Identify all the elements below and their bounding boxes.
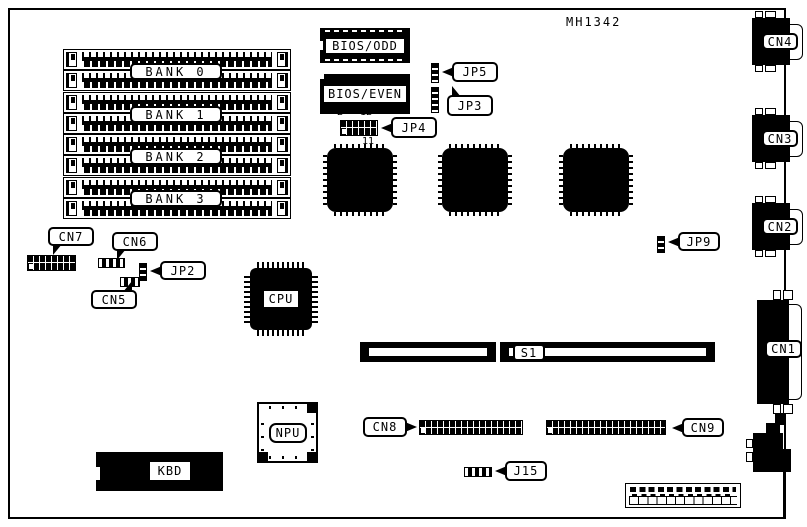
- npu-socket: NPU: [257, 402, 318, 463]
- asic-chip-2: [442, 148, 508, 212]
- jp9-callout: JP9: [678, 232, 720, 251]
- jp4-label: JP4: [402, 121, 427, 135]
- bios-odd-label: BIOS/ODD: [324, 37, 406, 55]
- jp5-label: JP5: [463, 65, 488, 79]
- cn8-header: [419, 420, 523, 435]
- cpu-label: CPU: [262, 289, 300, 309]
- jp9-label: JP9: [687, 235, 712, 249]
- cpu-chip: CPU: [250, 268, 312, 330]
- jp2-jumper: [139, 263, 147, 281]
- bank1-label: BANK 1: [130, 106, 222, 123]
- cn8-callout: CN8: [363, 417, 407, 437]
- cn2-label: CN2: [762, 218, 798, 235]
- cn9-header: [546, 420, 666, 435]
- cn1-connector: CN1: [751, 288, 803, 416]
- motherboard-diagram: MH1342 BANK 0 BANK 1 BANK 2 BANK 3 BIOS/…: [0, 0, 807, 527]
- bios-even-label: BIOS/EVEN: [322, 84, 408, 104]
- kbd-chip: KBD: [96, 452, 223, 491]
- cn7-callout: CN7: [48, 227, 94, 246]
- jp4-pin2-number: 2: [337, 107, 343, 118]
- slot-bar-left: [360, 342, 496, 362]
- edge-line: [783, 472, 786, 519]
- jp2-callout: JP2: [160, 261, 206, 280]
- j15-callout: J15: [505, 461, 547, 481]
- part-number: MH1342: [566, 15, 621, 29]
- jp5-jumper: [431, 63, 439, 83]
- s1-label: S1: [513, 344, 545, 361]
- cn1-label: CN1: [765, 340, 802, 358]
- bios-odd-chip: BIOS/ODD: [320, 28, 410, 63]
- jp4-pin12-number: 12: [360, 107, 372, 118]
- asic-chip-3: [563, 148, 629, 212]
- bank0-label: BANK 0: [130, 63, 222, 80]
- cn3-connector: CN3: [751, 108, 803, 172]
- cn3-label: CN3: [762, 130, 798, 147]
- cn9-label: CN9: [691, 421, 716, 435]
- bank2-label: BANK 2: [130, 148, 222, 165]
- jp9-jumper: [657, 236, 665, 253]
- cn4-connector: CN4: [751, 11, 803, 75]
- j15-label: J15: [514, 464, 539, 478]
- cn5-label: CN5: [102, 293, 127, 307]
- jp3-jumper: [431, 87, 439, 113]
- npu-label: NPU: [269, 423, 307, 443]
- j15-jumper: [464, 467, 492, 477]
- asic-chip-1: [327, 148, 393, 212]
- cn9-callout: CN9: [682, 418, 724, 437]
- jp3-label: JP3: [458, 99, 483, 113]
- power-connector: [625, 483, 741, 508]
- jp5-callout: JP5: [452, 62, 498, 82]
- cn5-callout: CN5: [91, 290, 137, 309]
- cn7-label: CN7: [59, 230, 84, 244]
- jp2-label: JP2: [171, 264, 196, 278]
- jp4-jumper-block: [340, 120, 378, 136]
- cn6-callout: CN6: [112, 232, 158, 251]
- din-extension: [783, 449, 791, 472]
- cn8-label: CN8: [373, 420, 398, 434]
- cn6-label: CN6: [123, 235, 148, 249]
- bank3-label: BANK 3: [130, 190, 222, 207]
- cn7-header: [27, 255, 76, 271]
- jp4-callout: JP4: [391, 117, 437, 138]
- keyboard-din-connector: [753, 433, 783, 472]
- cn2-connector: CN2: [751, 196, 803, 260]
- kbd-label: KBD: [150, 462, 190, 480]
- cn4-label: CN4: [762, 33, 798, 50]
- jp3-callout: JP3: [447, 95, 493, 116]
